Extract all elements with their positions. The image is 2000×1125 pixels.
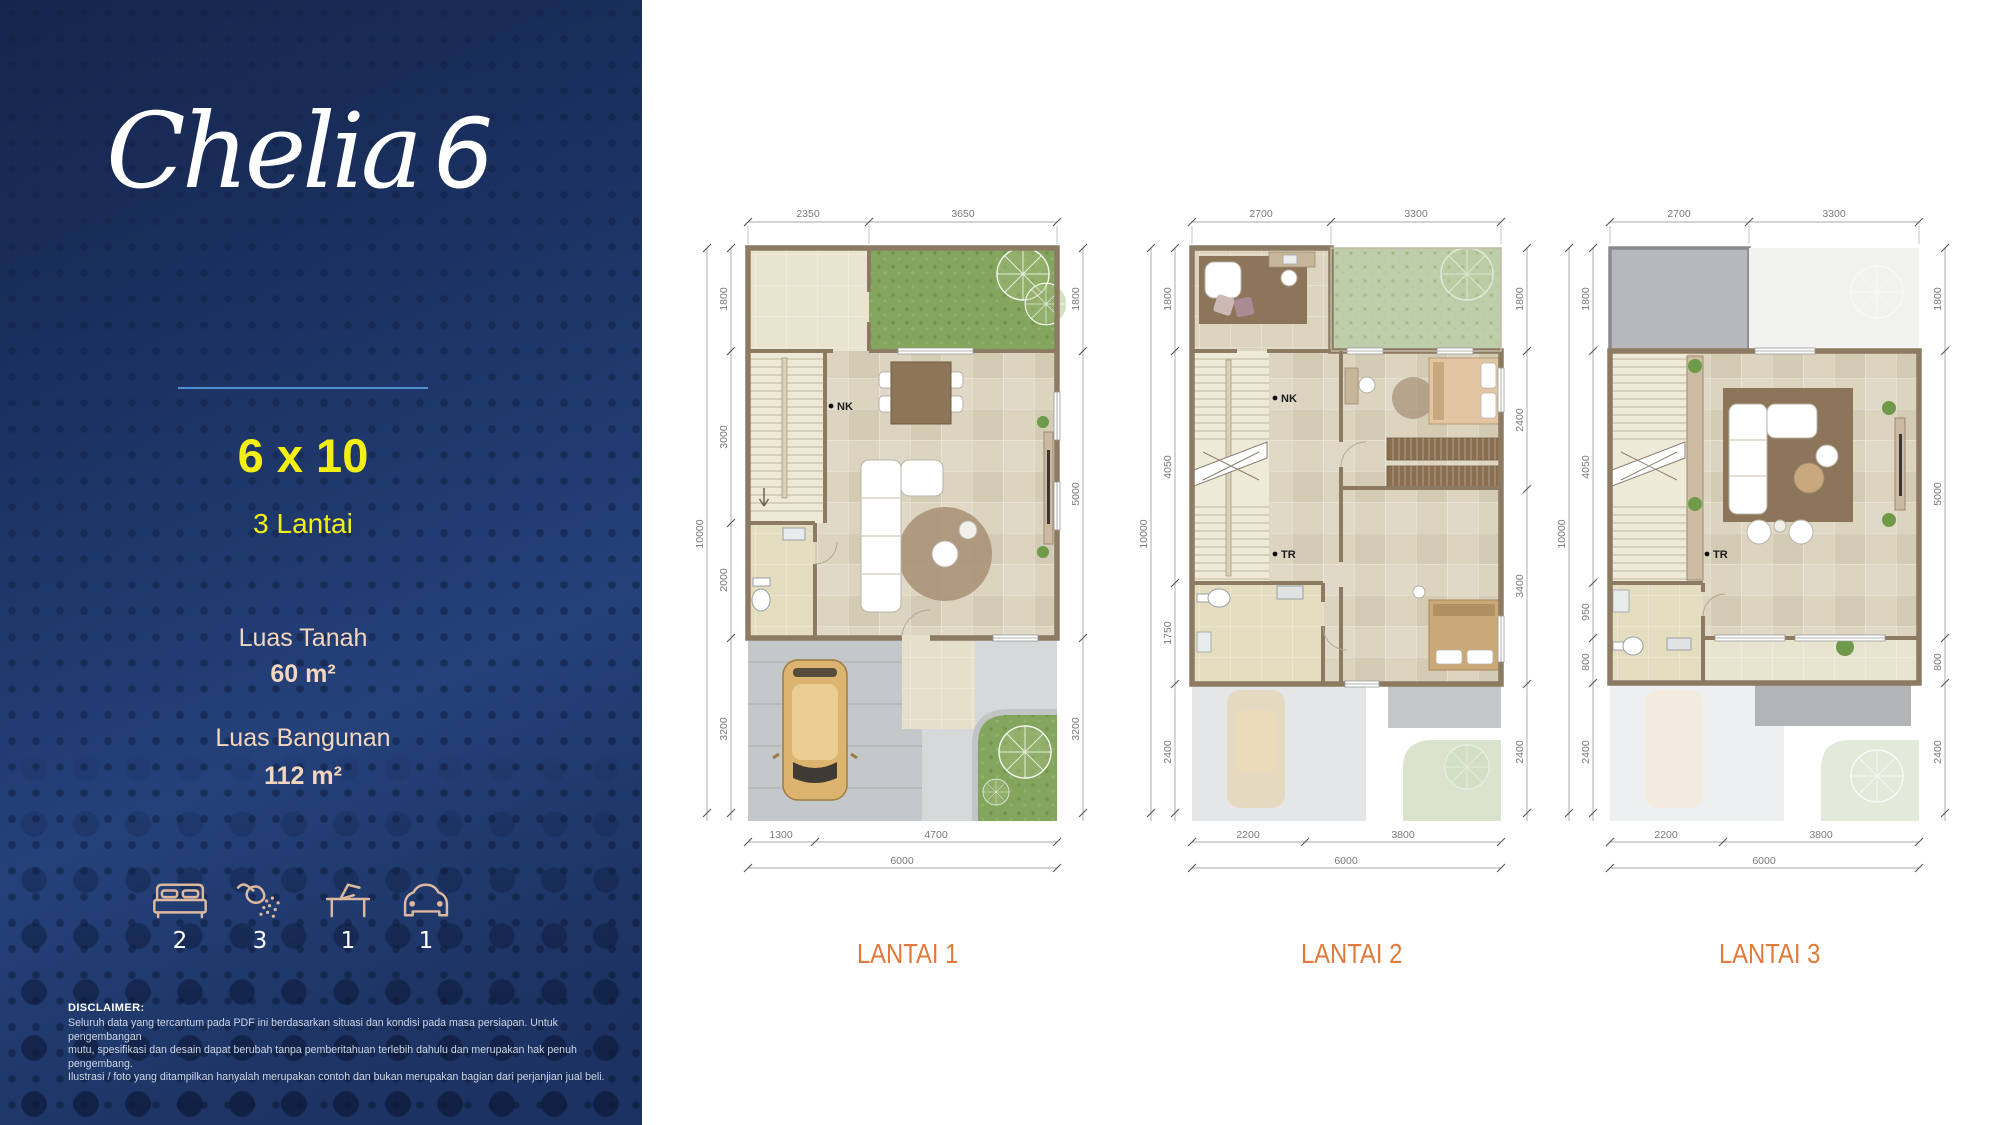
marker-nk: NK [837,401,853,413]
dim-label: 1800 [1162,287,1174,311]
dim-label: 2400 [1580,740,1592,764]
dim-label: 2200 [1654,829,1678,841]
caption-lantai-2: LANTAI 2 [1137,938,1567,970]
dim-label: 950 [1580,603,1592,621]
caption-lantai-1: LANTAI 1 [693,938,1123,970]
carport-count: 1 [394,928,458,954]
disclaimer: DISCLAIMER: Seluruh data yang tercantum … [68,1002,608,1085]
dim-label: 2400 [1514,408,1526,432]
bedroom-count: 2 [148,928,212,954]
dim-label: 10000 [1138,519,1150,548]
floor-plan-lantai-2: NK TR 2700 3300 10000 1800 4050 1750 240… [1137,192,1567,882]
open-void [1749,248,1919,351]
dim-label: 2400 [1932,740,1944,764]
dim-label: 2200 [1236,829,1260,841]
floor-plan-lantai-1: NK 2350 3650 10000 1800 3000 2000 3200 1… [693,192,1123,882]
marker-tr: TR [1713,549,1728,561]
dim-label: 2350 [796,208,820,220]
disclaimer-line-3: Ilustrasi / foto yang ditampilkan hanyal… [68,1071,608,1085]
stairs [1610,351,1703,583]
brand-title-script: Chelia [106,90,419,212]
building-area-label: Luas Bangunan [60,724,546,753]
dim-label: 2400 [1162,740,1174,764]
title-divider [178,387,428,389]
dim-label: 1800 [1580,287,1592,311]
dim-label: 2400 [1514,740,1526,764]
study-count: 1 [316,928,380,954]
feature-icons-row: 2 3 [0,880,560,970]
dim-label: 1800 [718,287,730,311]
bed-icon [151,880,209,920]
dim-label: 6000 [1752,855,1776,867]
dim-label: 800 [1580,653,1592,671]
dim-label: 800 [1932,653,1944,671]
brand-title-number: 6 [433,98,494,210]
caption-lantai-2-text: LANTAI 2 [1301,938,1402,970]
dim-label: 3300 [1822,208,1846,220]
dim-label: 6000 [890,855,914,867]
dim-label: 4050 [1580,455,1592,479]
dim-label: 5000 [1932,482,1944,506]
feature-study: 1 [316,880,380,954]
family-room [1199,252,1315,324]
side-stool [959,521,977,539]
caption-lantai-1-text: LANTAI 1 [857,938,958,970]
dim-label: 2700 [1249,208,1273,220]
dim-label: 1800 [1070,287,1082,311]
dim-label: 5000 [1070,482,1082,506]
dim-label: 1300 [769,829,793,841]
canopy-roof [1755,683,1911,726]
car-top-view [773,660,857,800]
sidebar: Chelia6 6 x 10 3 Lantai Luas Tanah 60 m²… [0,0,642,1125]
floor-plan-lantai-3: TR 2700 3300 10000 1800 4050 950 800 240… [1555,192,1985,882]
dim-label: 1800 [1514,287,1526,311]
dim-label: 1750 [1162,621,1174,645]
marker-nk: NK [1281,393,1297,405]
dim-label: 3400 [1514,574,1526,598]
car-icon [397,880,455,920]
bathroom-count: 3 [228,928,292,954]
dim-label: 4050 [1162,455,1174,479]
land-area-label: Luas Tanah [60,624,546,653]
dim-label: 10000 [1556,519,1568,548]
stairs [1192,351,1269,583]
dim-label: 2700 [1667,208,1691,220]
roof-deck [1610,248,1749,351]
dim-label: 6000 [1334,855,1358,867]
garden-void [1331,248,1501,351]
disclaimer-title: DISCLAIMER: [68,1002,608,1014]
feature-carport: 1 [394,880,458,954]
dim-label: 3300 [1404,208,1428,220]
brochure-page: { "sidebar": { "title_script": "Chelia",… [0,0,2000,1125]
dining-set [879,362,963,424]
dim-label: 4700 [924,829,948,841]
dim-label: 3800 [1809,829,1833,841]
lot-size: 6 x 10 [60,428,546,483]
feature-bathroom: 3 [228,880,292,954]
disclaimer-line-2: mutu, spesifikasi dan desain dapat berub… [68,1044,608,1071]
desk-icon [319,880,377,920]
shower-icon [231,880,289,920]
caption-lantai-3-text: LANTAI 3 [1719,938,1820,970]
disclaimer-line-1: Seluruh data yang tercantum pada PDF ini… [68,1017,608,1044]
coffee-table [932,541,958,567]
floor-count: 3 Lantai [60,508,546,540]
dim-label: 3650 [951,208,975,220]
dim-label: 3200 [718,717,730,741]
dim-label: 3000 [718,425,730,449]
dim-label: 2000 [718,568,730,592]
void-lower-level [1192,684,1501,821]
feature-bedroom: 2 [148,880,212,954]
dim-label: 10000 [694,519,706,548]
caption-lantai-3: LANTAI 3 [1555,938,1985,970]
dim-label: 1800 [1932,287,1944,311]
land-area-value: 60 m² [60,660,546,689]
brand-title: Chelia6 [60,98,540,210]
building-area-value: 112 m² [60,762,546,791]
dim-label: 3800 [1391,829,1415,841]
stairs [748,351,825,523]
marker-tr: TR [1281,549,1296,561]
dim-label: 3200 [1070,717,1082,741]
